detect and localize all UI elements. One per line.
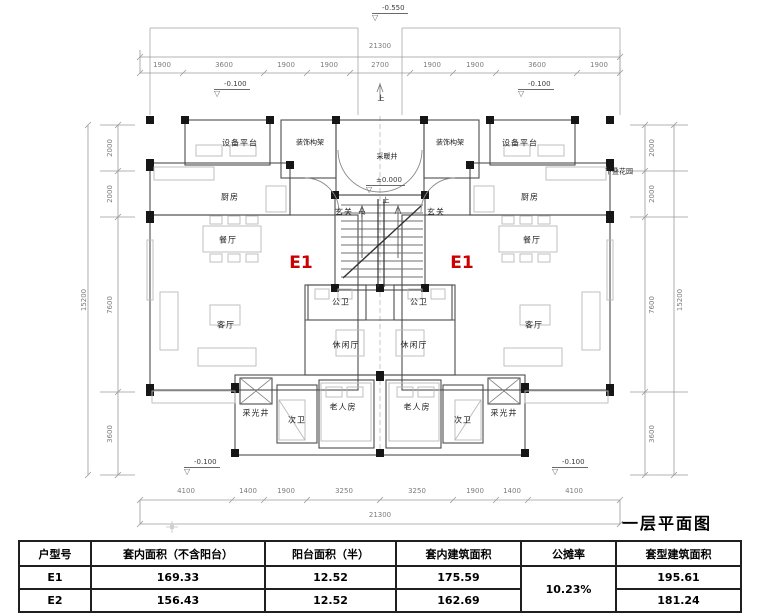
room-label-garden: 下叠花园 bbox=[605, 168, 633, 177]
dim-top-1: 1900 bbox=[153, 61, 171, 69]
room-label-leisure-left: 休闲厅 bbox=[333, 341, 360, 350]
room-label-dining-right: 餐厅 bbox=[523, 236, 541, 245]
level-marker-top: -0.550▽ bbox=[372, 4, 408, 21]
level-triangle-icon: ▽ bbox=[366, 186, 372, 193]
room-label-equip-left: 设备平台 bbox=[222, 139, 258, 148]
room-label-deco-right: 装饰构架 bbox=[436, 139, 464, 148]
dim-bottom-3: 1900 bbox=[277, 487, 295, 495]
room-label-lightwell-left: 采光井 bbox=[243, 409, 270, 418]
room-label-lightwell-right: 采光井 bbox=[491, 409, 518, 418]
cell-e2-balcony: 12.52 bbox=[265, 589, 396, 612]
level-triangle-icon: ▽ bbox=[214, 90, 220, 97]
room-label-public-bath-right: 公卫 bbox=[410, 298, 428, 307]
dim-bottom-1: 4100 bbox=[177, 487, 195, 495]
room-label-foyer-left: 玄关 bbox=[335, 208, 353, 217]
dim-right-2: 2000 bbox=[648, 185, 656, 203]
dim-bottom-2: 1400 bbox=[239, 487, 257, 495]
cell-e2-inner-total: 162.69 bbox=[396, 589, 521, 612]
room-label-deco-left: 装饰构架 bbox=[296, 139, 324, 148]
dim-left-4: 3600 bbox=[106, 425, 114, 443]
dim-top-4: 1900 bbox=[320, 61, 338, 69]
dim-right-3: 7600 bbox=[648, 296, 656, 314]
dim-top-7: 1900 bbox=[466, 61, 484, 69]
level-marker-zero: ±0.000▽ bbox=[366, 176, 405, 193]
level-triangle-icon: ▽ bbox=[518, 90, 524, 97]
cell-e1-inner-total: 175.59 bbox=[396, 566, 521, 589]
stair-up-label-top: 上 bbox=[378, 95, 385, 104]
dim-right-1: 2000 bbox=[648, 139, 656, 157]
level-marker-upper-right: -0.100▽ bbox=[518, 80, 554, 97]
room-label-leisure-right: 休闲厅 bbox=[401, 341, 428, 350]
plan-title: 一层平面图 bbox=[622, 510, 712, 534]
header-shared-rate: 公摊率 bbox=[521, 541, 616, 566]
header-unit-building-area: 套型建筑面积 bbox=[616, 541, 741, 566]
room-label-kitchen-right: 厨房 bbox=[521, 193, 539, 202]
dim-bottom-5: 3250 bbox=[408, 487, 426, 495]
cell-e1-balcony: 12.52 bbox=[265, 566, 396, 589]
table-header-row: 户型号 套内面积（不含阳台） 阳台面积（半） 套内建筑面积 公摊率 套型建筑面积 bbox=[19, 541, 741, 566]
area-table: 户型号 套内面积（不含阳台） 阳台面积（半） 套内建筑面积 公摊率 套型建筑面积… bbox=[18, 540, 742, 613]
dim-top-3: 1900 bbox=[277, 61, 295, 69]
cell-e2-total: 181.24 bbox=[616, 589, 741, 612]
level-marker-upper-left: -0.100▽ bbox=[214, 80, 250, 97]
room-label-living-left: 客厅 bbox=[217, 321, 235, 330]
room-label-elder-left: 老人房 bbox=[330, 403, 357, 412]
dim-left-total: 15200 bbox=[80, 289, 88, 311]
dim-left-1: 2000 bbox=[106, 139, 114, 157]
dim-bottom-4: 3250 bbox=[335, 487, 353, 495]
room-label-foyer-right: 玄关 bbox=[427, 208, 445, 217]
dim-left-3: 7600 bbox=[106, 296, 114, 314]
header-unit-type: 户型号 bbox=[19, 541, 91, 566]
level-triangle-icon: ▽ bbox=[372, 14, 378, 21]
header-inner-building-area: 套内建筑面积 bbox=[396, 541, 521, 566]
cell-e1-type: E1 bbox=[19, 566, 91, 589]
dim-bottom-8: 4100 bbox=[565, 487, 583, 495]
dim-right-4: 3600 bbox=[648, 425, 656, 443]
cell-e2-inner: 156.43 bbox=[91, 589, 265, 612]
cell-e1-total: 195.61 bbox=[616, 566, 741, 589]
room-label-second-bath-left: 次卫 bbox=[288, 416, 306, 425]
cell-e1-inner: 169.33 bbox=[91, 566, 265, 589]
level-marker-lower-right: -0.100▽ bbox=[552, 458, 588, 475]
header-balcony-area: 阳台面积（半） bbox=[265, 541, 396, 566]
room-label-living-right: 客厅 bbox=[525, 321, 543, 330]
room-label-heating-shaft: 采暖井 bbox=[377, 153, 398, 162]
unit-label-e1-left: E1 bbox=[289, 253, 312, 273]
dim-top-5: 2700 bbox=[371, 61, 389, 69]
dim-top-2: 3600 bbox=[215, 61, 233, 69]
room-label-elder-right: 老人房 bbox=[404, 403, 431, 412]
level-triangle-icon: ▽ bbox=[552, 468, 558, 475]
room-label-dining-left: 餐厅 bbox=[219, 236, 237, 245]
floor-plan: 设备平台 设备平台 装饰构架 装饰构架 采暖井 厨房 厨房 玄关 玄关 下叠花园… bbox=[0, 0, 760, 535]
dim-top-6: 1900 bbox=[423, 61, 441, 69]
dim-bottom-7: 1400 bbox=[503, 487, 521, 495]
page: { "title": "一层平面图", "plan": { "unit_labe… bbox=[0, 0, 760, 607]
header-inner-area: 套内面积（不含阳台） bbox=[91, 541, 265, 566]
dim-left-2: 2000 bbox=[106, 185, 114, 203]
table-row-e1: E1 169.33 12.52 175.59 10.23% 195.61 bbox=[19, 566, 741, 589]
room-label-equip-right: 设备平台 bbox=[502, 139, 538, 148]
floor-plan-drawing bbox=[0, 0, 760, 535]
room-label-kitchen-left: 厨房 bbox=[221, 193, 239, 202]
room-label-second-bath-right: 次卫 bbox=[454, 416, 472, 425]
dim-bottom-6: 1900 bbox=[466, 487, 484, 495]
cell-e2-type: E2 bbox=[19, 589, 91, 612]
dim-top-total: 21300 bbox=[369, 42, 391, 50]
level-marker-lower-left: -0.100▽ bbox=[184, 458, 220, 475]
level-triangle-icon: ▽ bbox=[184, 468, 190, 475]
dim-top-8: 3600 bbox=[528, 61, 546, 69]
dim-top-9: 1900 bbox=[590, 61, 608, 69]
stair-up-label: 上 bbox=[383, 197, 390, 206]
cell-shared-rate: 10.23% bbox=[521, 566, 616, 612]
stair-down-label: 下 bbox=[359, 211, 366, 220]
dim-right-total: 15200 bbox=[676, 289, 684, 311]
room-label-public-bath-left: 公卫 bbox=[332, 298, 350, 307]
dim-bottom-total: 21300 bbox=[369, 511, 391, 519]
unit-label-e1-right: E1 bbox=[450, 253, 473, 273]
table-row-e2: E2 156.43 12.52 162.69 181.24 bbox=[19, 589, 741, 612]
